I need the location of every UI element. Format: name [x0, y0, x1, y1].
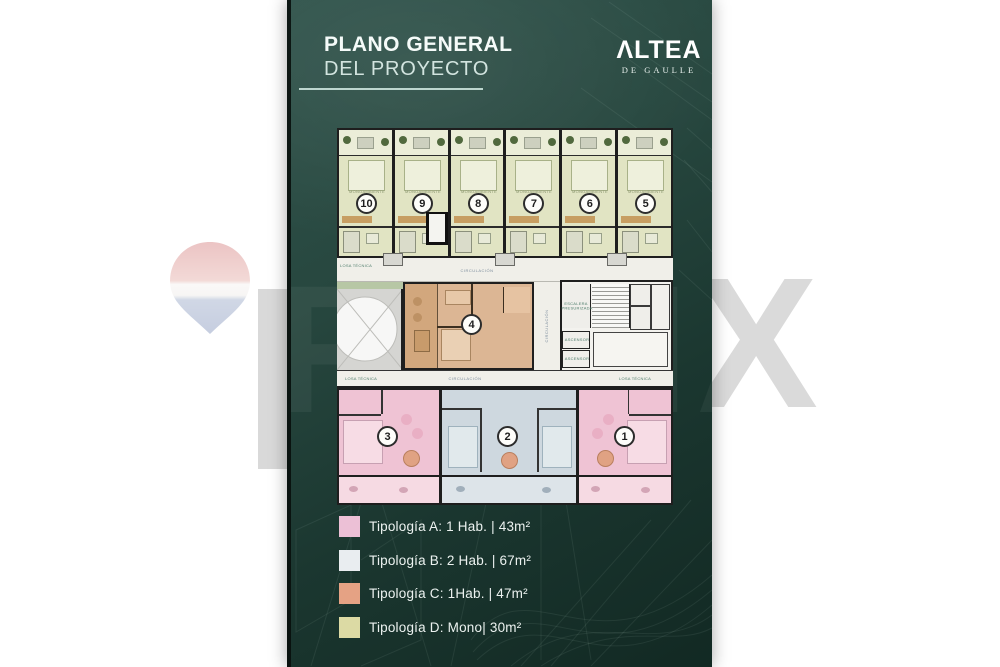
bed: [542, 426, 572, 468]
unit-number-badge: 2: [497, 426, 518, 447]
exterior-stair-pod: [426, 212, 448, 245]
kitchen-counter: [454, 216, 484, 223]
ac-unit: [607, 253, 627, 266]
elevator-label: ASCENSOR: [565, 338, 589, 343]
mono-units-row: MONOAMBIENTE 10 MONOAMBIENTE 9 MONOAMBIE…: [337, 128, 673, 258]
brand-logo-subtitle: DE GAULLE: [611, 65, 707, 75]
typology-legend: Tipología A: 1 Hab. | 43m² Tipología B: …: [339, 516, 531, 650]
balcony: [442, 475, 576, 503]
bed: [348, 160, 385, 191]
floor-plan: MONOAMBIENTE 10 MONOAMBIENTE 9 MONOAMBIE…: [337, 128, 673, 505]
balcony: [339, 130, 392, 156]
legend-label-a: Tipología A: 1 Hab. | 43m²: [369, 519, 530, 534]
legend-row-b: Tipología B: 2 Hab. | 67m²: [339, 550, 531, 571]
legend-label-d: Tipología D: Mono| 30m²: [369, 620, 521, 635]
page-subtitle: DEL PROYECTO: [324, 58, 489, 81]
unit-8: MONOAMBIENTE 8: [451, 130, 507, 256]
unit-2: 2: [442, 390, 579, 503]
legend-row-d: Tipología D: Mono| 30m²: [339, 617, 531, 638]
unit-number-badge: 8: [468, 193, 489, 214]
technical-slab-label: LOSA TÉCNICA: [340, 264, 372, 269]
legend-label-c: Tipología C: 1Hab. | 47m²: [369, 586, 528, 601]
circulation-label: CIRCULACIÓN: [545, 309, 550, 342]
page: { "header": { "title_line1": "PLANO GENE…: [0, 0, 1000, 667]
kitchen-counter: [398, 216, 428, 223]
balcony: [395, 130, 448, 156]
meter-room: [630, 284, 651, 306]
ac-unit: [495, 253, 515, 266]
meter-room: [630, 306, 651, 330]
unit-number-badge: 3: [377, 426, 398, 447]
balcony: [579, 475, 671, 503]
elevator-1: ASCENSOR: [562, 331, 590, 349]
balcony: [562, 130, 615, 156]
lower-units-row: 3 2 1: [337, 388, 673, 505]
unit-6: MONOAMBIENTE 6: [562, 130, 618, 256]
kitchen-counter: [565, 216, 595, 223]
unit-number-badge: 10: [356, 193, 377, 214]
unit-10: MONOAMBIENTE 10: [339, 130, 395, 256]
elevator-label: ASCENSOR: [565, 357, 589, 362]
technical-room: [593, 332, 668, 367]
brochure-panel: REMA PLANO GENERAL DEL PROYECTO ΛLTEA DE…: [287, 0, 712, 667]
brand-logo: ΛLTEA DE GAULLE: [611, 38, 707, 75]
unit-7: MONOAMBIENTE 7: [506, 130, 562, 256]
unit-number-badge: 4: [461, 314, 482, 335]
legend-row-a: Tipología A: 1 Hab. | 43m²: [339, 516, 531, 537]
elevator-2: ASCENSOR: [562, 350, 590, 368]
terrace: [405, 284, 438, 368]
technical-slab-label: LOSA TÉCNICA: [619, 377, 651, 382]
kitchen: [503, 287, 530, 313]
legend-swatch-d: [339, 617, 360, 638]
unit-number-badge: 9: [412, 193, 433, 214]
bed: [343, 420, 383, 464]
bed: [404, 160, 441, 191]
round-table: [597, 450, 614, 467]
balcony: [618, 130, 671, 156]
legend-swatch-b: [339, 550, 360, 571]
terrace-table: [414, 330, 430, 352]
ac-unit: [383, 253, 403, 266]
balcony: [339, 475, 439, 503]
dining-table: [445, 290, 471, 305]
bed: [460, 160, 497, 191]
round-table: [501, 452, 518, 469]
remax-watermark-letter-x: X: [694, 251, 818, 437]
corridor-bottom: LOSA TÉCNICA CIRCULACIÓN LOSA TÉCNICA: [337, 370, 673, 388]
circulation-label: CIRCULACIÓN: [460, 269, 493, 274]
bed: [627, 160, 664, 191]
round-table: [403, 450, 420, 467]
bed: [448, 426, 478, 468]
pressurized-stair-room: ESCALERA PRESURIZADA: [562, 284, 591, 328]
kitchen-counter: [621, 216, 651, 223]
stairs-label: ESCALERA PRESURIZADA: [562, 301, 591, 310]
corridor-vertical: CIRCULACIÓN: [534, 282, 560, 370]
unit-1: 1: [579, 390, 671, 503]
unit-number-badge: 5: [635, 193, 656, 214]
title-underline: [299, 88, 483, 90]
page-title: PLANO GENERAL: [324, 33, 513, 57]
kitchen-counter: [509, 216, 539, 223]
lightwell-void: [337, 289, 403, 370]
planter-strip: [337, 282, 403, 289]
kitchen-counter: [342, 216, 372, 223]
circulation-label: CIRCULACIÓN: [448, 377, 481, 382]
remax-balloon-icon: [166, 240, 254, 336]
legend-row-c: Tipología C: 1Hab. | 47m²: [339, 583, 531, 604]
bed: [571, 160, 608, 191]
unit-3: 3: [339, 390, 442, 503]
unit-number-badge: 7: [523, 193, 544, 214]
bed: [515, 160, 552, 191]
legend-label-b: Tipología B: 2 Hab. | 67m²: [369, 553, 531, 568]
technical-slab-label: LOSA TÉCNICA: [345, 377, 377, 382]
balcony: [451, 130, 504, 156]
unit-4: 4: [403, 282, 534, 370]
remax-watermark-letter-fragment: [258, 289, 288, 469]
building-core: ESCALERA PRESURIZADA ASCENSOR ASCENSOR: [560, 280, 673, 372]
unit-5: MONOAMBIENTE 5: [618, 130, 671, 256]
unit-number-badge: 6: [579, 193, 600, 214]
service-room: [651, 284, 670, 330]
balcony: [506, 130, 559, 156]
legend-swatch-c: [339, 583, 360, 604]
brand-logo-name: ΛLTEA: [611, 38, 707, 63]
stairs: [592, 284, 630, 328]
legend-swatch-a: [339, 516, 360, 537]
unit-number-badge: 1: [614, 426, 635, 447]
